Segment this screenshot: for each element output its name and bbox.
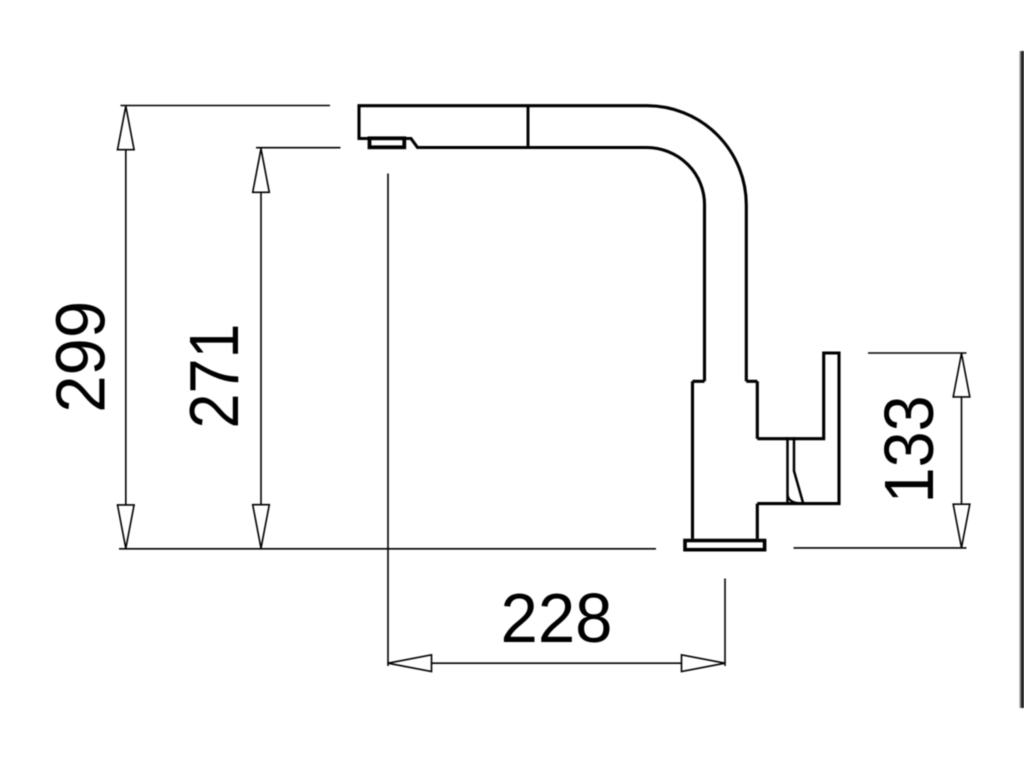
svg-text:133: 133 <box>870 395 948 503</box>
svg-text:271: 271 <box>175 324 253 429</box>
svg-text:299: 299 <box>42 301 120 413</box>
svg-text:228: 228 <box>501 579 613 657</box>
